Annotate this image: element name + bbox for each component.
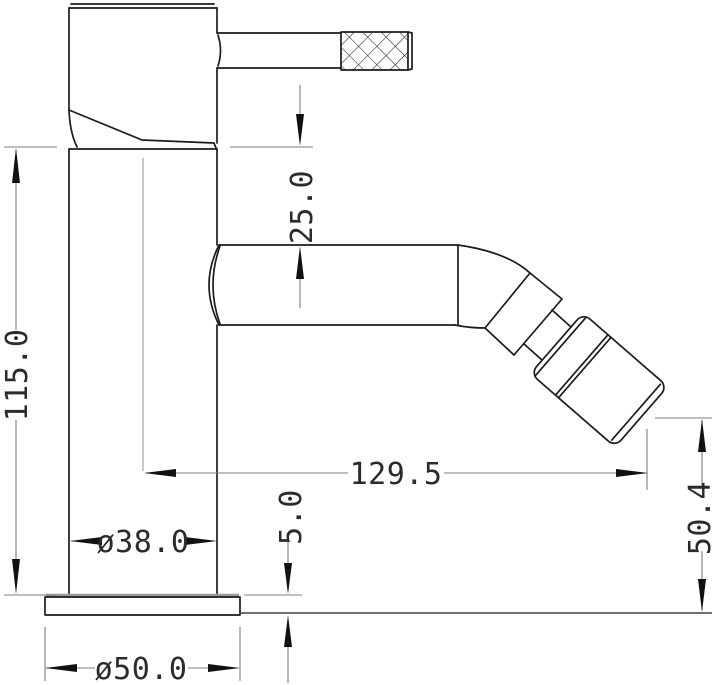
arrowhead: [185, 537, 217, 545]
arrowhead: [284, 563, 292, 594]
bend-outer-arc: [458, 245, 530, 273]
dimension-base-diameter: ø50.0: [45, 627, 240, 685]
dimension-spout-reach: 129.5: [144, 429, 648, 492]
technical-drawing: 115.0 25.0 129.5 50.4 5.0: [0, 0, 715, 685]
dimension-handle-to-spout: 25.0: [230, 85, 320, 308]
head-front-face-double: [535, 317, 586, 376]
arrowhead: [208, 664, 240, 672]
bend-joint-line: [485, 273, 530, 328]
faucet-outline: [45, 4, 712, 615]
arrowhead: [45, 664, 77, 672]
arrowhead: [698, 419, 706, 452]
dimension-body-diameter: ø38.0: [70, 525, 217, 560]
arrowhead: [12, 148, 20, 183]
arrowhead: [698, 579, 706, 612]
knurled-grip: [341, 32, 412, 70]
dimension-base-thickness: 5.0: [244, 489, 309, 683]
arrowhead: [144, 469, 176, 477]
arrowhead: [296, 114, 304, 146]
spout: [209, 245, 571, 360]
bend-inner-arc: [455, 325, 485, 328]
aerator-head: [531, 313, 668, 447]
head-separation-line-2: [558, 337, 610, 397]
base-plate: [45, 596, 240, 616]
arrowhead: [12, 559, 20, 594]
dimension-label-overall-height: 115.0: [0, 329, 35, 422]
dimension-outlet-height: 50.4: [655, 418, 715, 612]
arrowhead: [284, 615, 292, 647]
dimension-label-handle-to-spout: 25.0: [285, 170, 320, 244]
dimension-overall-height: 115.0: [0, 147, 57, 595]
arrowhead: [616, 469, 648, 477]
head-end-cap-line: [612, 384, 661, 440]
dimension-label-body-diameter: ø38.0: [97, 525, 190, 560]
dimension-label-spout-reach: 129.5: [350, 457, 443, 492]
spout-root-arc-outer: [209, 245, 219, 325]
dimension-label-outlet-height: 50.4: [683, 481, 715, 555]
dimension-label-base-diameter: ø50.0: [95, 652, 188, 685]
drawing-canvas: 115.0 25.0 129.5 50.4 5.0: [0, 0, 715, 685]
knurl-hatch: [341, 32, 408, 70]
handle-lever: [217, 33, 341, 68]
arrowhead: [296, 246, 304, 279]
handle-body: [69, 4, 221, 148]
dimension-label-base-thickness: 5.0: [274, 489, 309, 545]
